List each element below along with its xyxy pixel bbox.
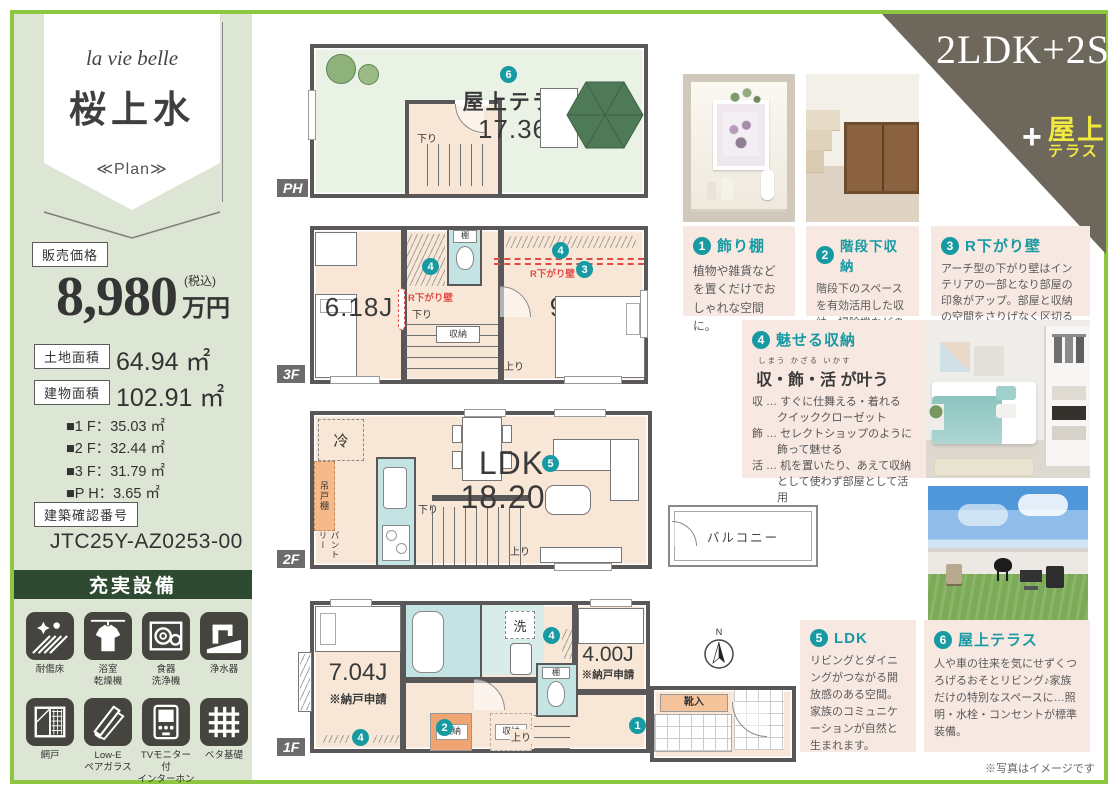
chair xyxy=(452,425,462,443)
shoe-cabinet: 靴入 xyxy=(660,694,728,712)
window xyxy=(308,90,316,140)
equipment-label: 浄水器 xyxy=(195,664,253,676)
rug xyxy=(934,458,1034,476)
toilet-room: 棚 xyxy=(447,230,482,286)
callout-4: 4 魅せる収納 しまう かざる いかす 収・飾・活 が叶う 収 … すぐに仕舞え… xyxy=(742,320,926,478)
grill-legs xyxy=(997,571,999,581)
pillow xyxy=(626,303,640,335)
photo-bedroom-closet xyxy=(926,320,1090,478)
brand-name: la vie belle xyxy=(44,14,220,71)
scratch-proof-floor-icon xyxy=(26,612,74,660)
bed xyxy=(578,608,644,644)
door-seam xyxy=(882,125,884,191)
building-value: 102.91 ㎡ xyxy=(116,378,224,414)
plan-type-text: 2LDK+2S xyxy=(936,26,1110,73)
stairs xyxy=(427,144,491,186)
entrance-tiles xyxy=(654,714,732,752)
floorplan-1f: 7.04J ※納戸申請 4 洗 棚 4 4.00J ※納戸申請 1 収納 収納 … xyxy=(310,601,650,753)
laundry-space: 洗 xyxy=(505,611,535,639)
bbq-grill xyxy=(994,558,1012,572)
window xyxy=(330,376,380,384)
price-unit: 万円 xyxy=(182,288,230,323)
flower-art xyxy=(723,112,759,156)
bed xyxy=(932,382,1036,444)
bathtub xyxy=(412,611,444,673)
bathroom xyxy=(406,605,482,679)
feature-badge-2: 2 xyxy=(436,719,453,736)
photo-display-niche xyxy=(683,74,795,222)
stairs-down-label: 下り xyxy=(412,306,432,321)
equipment-label: 網戸 xyxy=(21,750,79,762)
price-tax-note: (税込) xyxy=(184,272,216,289)
floor-tag-3f: 3F xyxy=(277,365,305,383)
plant xyxy=(928,404,944,430)
window xyxy=(554,409,606,417)
pennant-rule xyxy=(222,22,223,202)
greenery xyxy=(723,84,763,106)
hanging-clothes xyxy=(1054,337,1062,363)
stairs xyxy=(534,713,570,749)
tv-intercom-icon xyxy=(142,698,190,746)
callout-6-title: 屋上テラス xyxy=(958,629,1038,650)
callout-2-number: 2 xyxy=(816,246,834,264)
callout-1-number: 1 xyxy=(693,237,711,255)
callout-3-number: 3 xyxy=(941,237,959,255)
vase xyxy=(761,170,774,200)
callout-3: 3 R下がり壁 アーチ型の下がり壁はインテリアの一部となり部屋の印象がアップ。部… xyxy=(931,226,1090,316)
arch-wall-label: R下がり壁 xyxy=(408,290,453,304)
callout-4-line: クイッククローゼット xyxy=(752,411,916,427)
equipment-label: 耐傷床 xyxy=(21,664,79,676)
toilet xyxy=(456,246,474,270)
callout-4-line: として使わず部屋として活用 xyxy=(752,475,916,507)
callout-4-line: 収 … すぐに仕舞える・着れる xyxy=(752,395,916,411)
door-arc xyxy=(672,521,697,546)
price-label-box: 販売価格 xyxy=(32,242,108,267)
callout-5-number: 5 xyxy=(810,629,828,647)
chair xyxy=(502,425,512,443)
floor-area-2f: ■2 F：32.44 ㎡ xyxy=(66,438,165,460)
arch-wall-line xyxy=(494,258,644,265)
screen-door-icon xyxy=(26,698,74,746)
window xyxy=(464,409,506,417)
callout-6: 6 屋上テラス 人や車の往来を気にせずくつろげるおそとリビング♪家族だけの特別な… xyxy=(924,620,1090,752)
callout-4-furigana: しまう かざる いかす xyxy=(758,355,916,366)
confirmation-label: 建築確認番号 xyxy=(34,502,138,527)
callout-5-title: LDK xyxy=(834,630,868,647)
callout-5: 5 LDK リビングとダイニングがつながる開放感のある空間。家族のコミュニケーシ… xyxy=(800,620,916,752)
callout-4-number: 4 xyxy=(752,331,770,349)
callout-5-body: リビングとダイニングがつながる開放感のある空間。家族のコミュニケーションが自然と… xyxy=(810,653,906,755)
stairs-up-label: 上り xyxy=(504,358,524,373)
land-value: 64.94 ㎡ xyxy=(116,342,211,378)
plan-label: ≪Plan≫ xyxy=(44,159,220,179)
wall-art xyxy=(940,342,970,372)
building-label: 建物面積 xyxy=(34,380,110,405)
camp-chair xyxy=(1046,566,1064,588)
roof-terrace-badge-bottom: テラス xyxy=(1048,140,1099,161)
land-label-box: 土地面積 xyxy=(34,344,110,369)
sink xyxy=(383,467,407,509)
room-note-1f-left: ※納戸申請 xyxy=(314,691,402,707)
brand-pennant: la vie belle 桜上水 ≪Plan≫ xyxy=(44,14,220,210)
toilet xyxy=(547,681,565,707)
callout-4-title: 魅せる収納 xyxy=(776,329,856,350)
wash-basin xyxy=(510,643,532,675)
bed xyxy=(315,606,401,652)
closet-hatch xyxy=(322,735,350,743)
pennant-chevron xyxy=(42,206,222,244)
open-closet xyxy=(1044,326,1090,466)
shelf-label: 棚 xyxy=(453,230,477,243)
picture-frame xyxy=(713,100,769,170)
stairs-up-label: 上り xyxy=(510,543,530,558)
feature-badge-4: 4 xyxy=(422,258,439,275)
stair-step xyxy=(806,150,824,172)
property-name: 桜上水 xyxy=(44,79,220,133)
equipment-title: 充実設備 xyxy=(14,570,252,599)
burner xyxy=(396,543,407,554)
callout-4-line: 活 … 机を置いたり、あえて収納 xyxy=(752,459,916,475)
tv-board xyxy=(540,547,622,563)
callout-1: 1 飾り棚 植物や雑貨などを置くだけでおしゃれな空間に。 xyxy=(683,226,795,316)
floor-area-list: ■1 F：35.03 ㎡ ■2 F：32.44 ㎡ ■3 F：31.79 ㎡ ■… xyxy=(66,416,165,506)
parasol xyxy=(566,81,644,149)
wall-cap xyxy=(928,548,1088,552)
callout-2-title: 階段下収納 xyxy=(840,235,909,275)
refrigerator-space: 冷 xyxy=(318,419,364,461)
feature-badge-1: 1 xyxy=(629,717,646,734)
stairs-down-label: 下り xyxy=(417,130,437,145)
callout-4-line: 飾 … セレクトショップのように xyxy=(752,427,916,443)
stairs-up-label: 上り xyxy=(510,729,532,744)
hanging-cupboard: 吊戸棚 xyxy=(314,461,335,531)
stair-step xyxy=(806,110,840,130)
cloud xyxy=(1018,494,1068,516)
door-arc xyxy=(474,679,505,710)
room-note-1f-right: ※納戸申請 xyxy=(566,667,650,682)
feature-badge-4: 4 xyxy=(552,242,569,259)
dishwasher-icon xyxy=(142,612,190,660)
pillow xyxy=(996,386,1016,400)
wall xyxy=(572,689,646,695)
feature-badge-6: 6 xyxy=(500,66,517,83)
price-label: 販売価格 xyxy=(32,242,108,267)
tree xyxy=(326,54,356,84)
land-label: 土地面積 xyxy=(34,344,110,369)
floor-tag-ph: PH xyxy=(277,179,308,197)
tree xyxy=(358,64,379,85)
desk xyxy=(315,232,357,266)
callout-4-subtitle: 収・飾・活 が叶う xyxy=(756,366,916,390)
water-purifier-icon xyxy=(200,612,248,660)
closet-label: 収納 xyxy=(436,326,480,343)
arch-wall-capsule xyxy=(398,288,405,330)
callout-6-body: 人や車の往来を気にせずくつろげるおそとリビング♪家族だけの特別なスペースに…照明… xyxy=(934,656,1080,741)
window xyxy=(330,599,372,607)
floorplan-3f: 6.18J 4 棚 R下がり壁 4 3 R下がり壁 下り 収納 上り 9.47J xyxy=(310,226,648,384)
closet-hatch xyxy=(372,735,400,743)
compass-n: N xyxy=(716,627,723,637)
compass-icon: N xyxy=(700,626,738,674)
kitchen xyxy=(376,457,416,565)
photo-under-stair-storage xyxy=(806,74,919,222)
floor-tag-2f: 2F xyxy=(277,550,305,568)
room-size-1f-right: 4.00J xyxy=(570,643,646,667)
arch-wall-label: R下がり壁 xyxy=(530,266,575,280)
floor-area-1f: ■1 F：35.03 ㎡ xyxy=(66,416,165,438)
building-label-box: 建物面積 xyxy=(34,380,110,405)
storage-doors xyxy=(844,122,919,194)
photo-roof-terrace xyxy=(928,486,1088,620)
stair-step xyxy=(806,130,832,150)
equipment-banner: 充実設備 xyxy=(14,570,252,599)
closet-hatch xyxy=(506,236,636,248)
equipment-label: 浴室 乾燥機 xyxy=(79,664,137,688)
feature-badge-4: 4 xyxy=(543,627,560,644)
low-table xyxy=(1020,570,1042,582)
bay-window-hatch xyxy=(300,654,310,710)
callout-2: 2 階段下収納 階段下のスペースを有効活用した収納。掃除機などの収納に便利。 xyxy=(806,226,919,316)
jar xyxy=(721,178,733,200)
closet-shelves xyxy=(1052,386,1086,400)
bottle xyxy=(707,182,716,200)
plus-sign: + xyxy=(1022,118,1042,157)
floorplan-2f: 冷 吊戸棚 パントリー 下り 上り LDK 5 18.20J xyxy=(310,411,652,569)
sidebar: la vie belle 桜上水 ≪Plan≫ 販売価格 8,980 (税込) … xyxy=(14,14,252,780)
window xyxy=(640,290,648,338)
pillow xyxy=(320,613,336,645)
floor-area-3f: ■3 F：31.79 ㎡ xyxy=(66,461,165,483)
callout-4-line: 飾って魅せる xyxy=(752,443,916,459)
callout-1-title: 飾り棚 xyxy=(717,235,765,256)
room-size-3f-left: 6.18J xyxy=(316,292,402,323)
room-size-1f-left: 7.04J xyxy=(314,659,402,687)
sofa-return xyxy=(610,439,639,501)
bay-window xyxy=(298,652,312,712)
price-value: 8,980 xyxy=(56,269,177,325)
confirmation-label-box: 建築確認番号 xyxy=(34,502,138,527)
entrance-wing: 靴入 xyxy=(650,686,796,762)
burner xyxy=(386,530,397,541)
floorplan-ph: 下り 6 屋上テラス 17.36J xyxy=(310,44,648,198)
window xyxy=(554,563,612,571)
pantry-label: パントリー xyxy=(317,531,341,565)
camp-chair xyxy=(946,564,962,584)
equipment-label: 食器 洗浄機 xyxy=(137,664,195,688)
bed xyxy=(555,296,645,378)
stove xyxy=(382,525,410,561)
window xyxy=(564,376,622,384)
callout-3-title: R下がり壁 xyxy=(965,235,1041,256)
slab-foundation-icon xyxy=(200,698,248,746)
lowe-pair-glass-icon xyxy=(84,698,132,746)
photo-disclaimer: ※写真はイメージです xyxy=(985,760,1095,776)
door-arc xyxy=(500,286,531,317)
equipment-label: TVモニター付 インターホン xyxy=(137,750,195,786)
confirmation-number: JTC25Y-AZ0253-00 xyxy=(50,530,243,554)
callout-6-number: 6 xyxy=(934,631,952,649)
equipment-label: Low-E ペアガラス xyxy=(79,750,137,774)
hanging-cupboard-label: 吊戸棚 xyxy=(318,481,331,511)
feature-badge-4: 4 xyxy=(352,729,369,746)
feature-badge-5: 5 xyxy=(542,455,559,472)
bathroom-dryer-icon xyxy=(84,612,132,660)
balcony: バルコニー xyxy=(668,505,818,567)
window xyxy=(590,599,632,607)
floor-tag-1f: 1F xyxy=(277,738,305,756)
feature-badge-3: 3 xyxy=(576,261,593,278)
coffee-table xyxy=(545,485,591,515)
equipment-label: ベタ基礎 xyxy=(195,750,253,762)
